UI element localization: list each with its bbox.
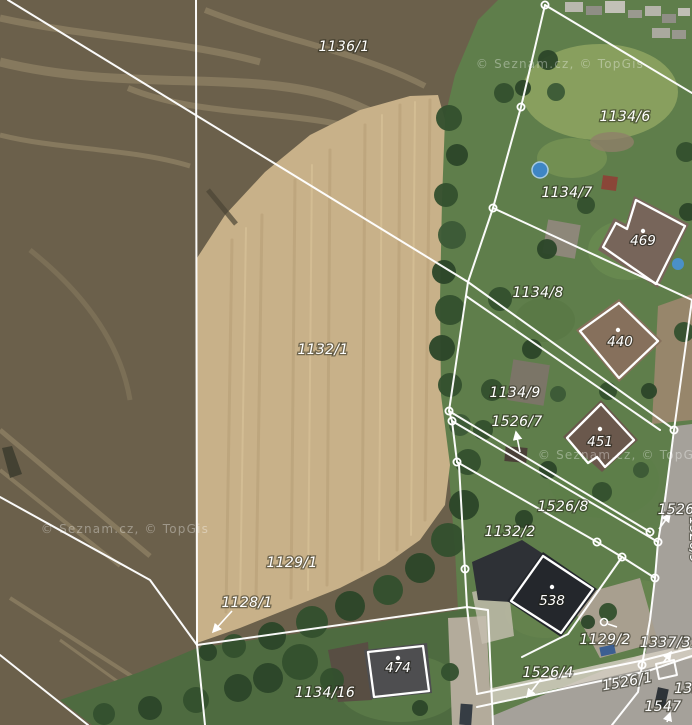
parcel-label-133: 133 bbox=[674, 681, 692, 697]
boundary-line bbox=[196, 0, 197, 645]
parcel-label-1134-6: 1134/6 bbox=[599, 109, 650, 125]
parcel-label-1547: 1547 bbox=[645, 699, 682, 715]
parcel-label-1526-8: 1526/8 bbox=[537, 499, 588, 515]
building-label-440: 440 bbox=[607, 334, 633, 350]
parcel-label-1136-1: 1136/1 bbox=[318, 39, 369, 55]
parcel-label-1129-1: 1129/1 bbox=[266, 555, 317, 571]
parcel-label-1134-9: 1134/9 bbox=[489, 385, 540, 401]
building-label-538: 538 bbox=[539, 593, 565, 609]
parcel-label-1526: 1526 bbox=[658, 502, 692, 518]
parcel-label-1132-2: 1132/2 bbox=[484, 524, 535, 540]
parcel-label-1526-4: 1526/4 bbox=[522, 665, 573, 681]
parcel-label-1134-7: 1134/7 bbox=[541, 185, 592, 201]
red-shed-roof bbox=[601, 175, 618, 191]
cadastral-map-viewport[interactable]: 1136/11134/61134/71134/81134/91526/71526… bbox=[0, 0, 692, 725]
building-label-474: 474 bbox=[385, 660, 411, 676]
swimming-pool bbox=[532, 162, 548, 178]
parcel-label-1132-1: 1132/1 bbox=[297, 342, 348, 358]
building-dot-451 bbox=[598, 427, 602, 431]
building-label-469: 469 bbox=[630, 233, 656, 249]
road-parcel-label: 1526/9 bbox=[686, 517, 692, 563]
parcel-label-1134-8: 1134/8 bbox=[512, 285, 563, 301]
attribution-watermark: © Seznam.cz, © TopGis bbox=[476, 57, 644, 71]
parcel-label-1129-2: 1129/2 bbox=[579, 632, 630, 648]
aerial-imagery bbox=[0, 0, 692, 725]
building-dot-538 bbox=[550, 585, 554, 589]
attribution-watermark: © Seznam.cz, © TopGis bbox=[41, 522, 209, 536]
building-dot-440 bbox=[616, 328, 620, 332]
car bbox=[459, 704, 472, 725]
parcel-label-1128-1: 1128/1 bbox=[221, 595, 272, 611]
parcel-label-1134-16: 1134/16 bbox=[295, 685, 355, 701]
attribution-watermark: © Seznam.cz, © TopGis bbox=[538, 448, 692, 462]
swimming-pool bbox=[672, 258, 684, 270]
parcel-label-1526-7: 1526/7 bbox=[491, 414, 542, 430]
parcel-label-1337-31: 1337/31 bbox=[640, 635, 692, 651]
cadastral-map: 1136/11134/61134/71134/81134/91526/71526… bbox=[0, 0, 692, 725]
